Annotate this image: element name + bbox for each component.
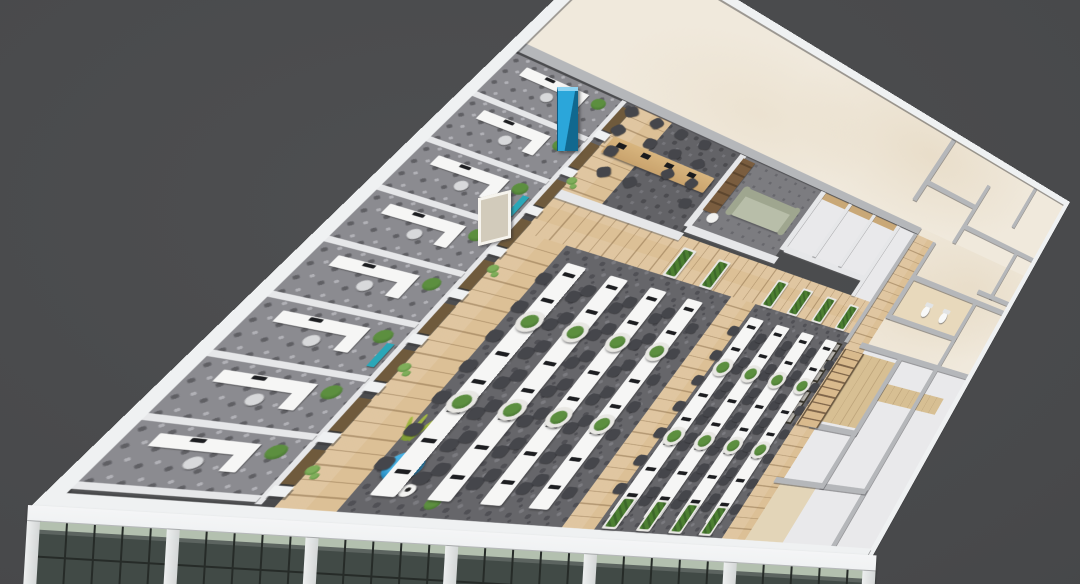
facade-glass-pane (454, 547, 584, 584)
office-chair (495, 134, 515, 147)
office-plant (418, 276, 445, 292)
office-chair (451, 179, 472, 192)
facade-glass-pane (315, 538, 445, 584)
office-plant (508, 181, 532, 196)
office-plant (316, 384, 347, 401)
office-plant (259, 444, 292, 461)
framed-wall-art (478, 190, 511, 246)
office-chair (537, 91, 556, 104)
office-chair (240, 393, 268, 407)
office-chair (403, 227, 426, 240)
office-chair (178, 456, 208, 470)
office-chair (352, 279, 376, 293)
scene-3d-office-floorplan (0, 0, 1080, 584)
blue-cabinet (557, 87, 578, 151)
building-floorplan (7, 0, 1070, 569)
office-chair (298, 334, 324, 348)
facade-glass-pane (175, 530, 305, 584)
facade-pier (580, 554, 597, 584)
facade-glass-pane (36, 522, 166, 584)
office-plant (369, 328, 398, 344)
office-plant (588, 97, 609, 112)
